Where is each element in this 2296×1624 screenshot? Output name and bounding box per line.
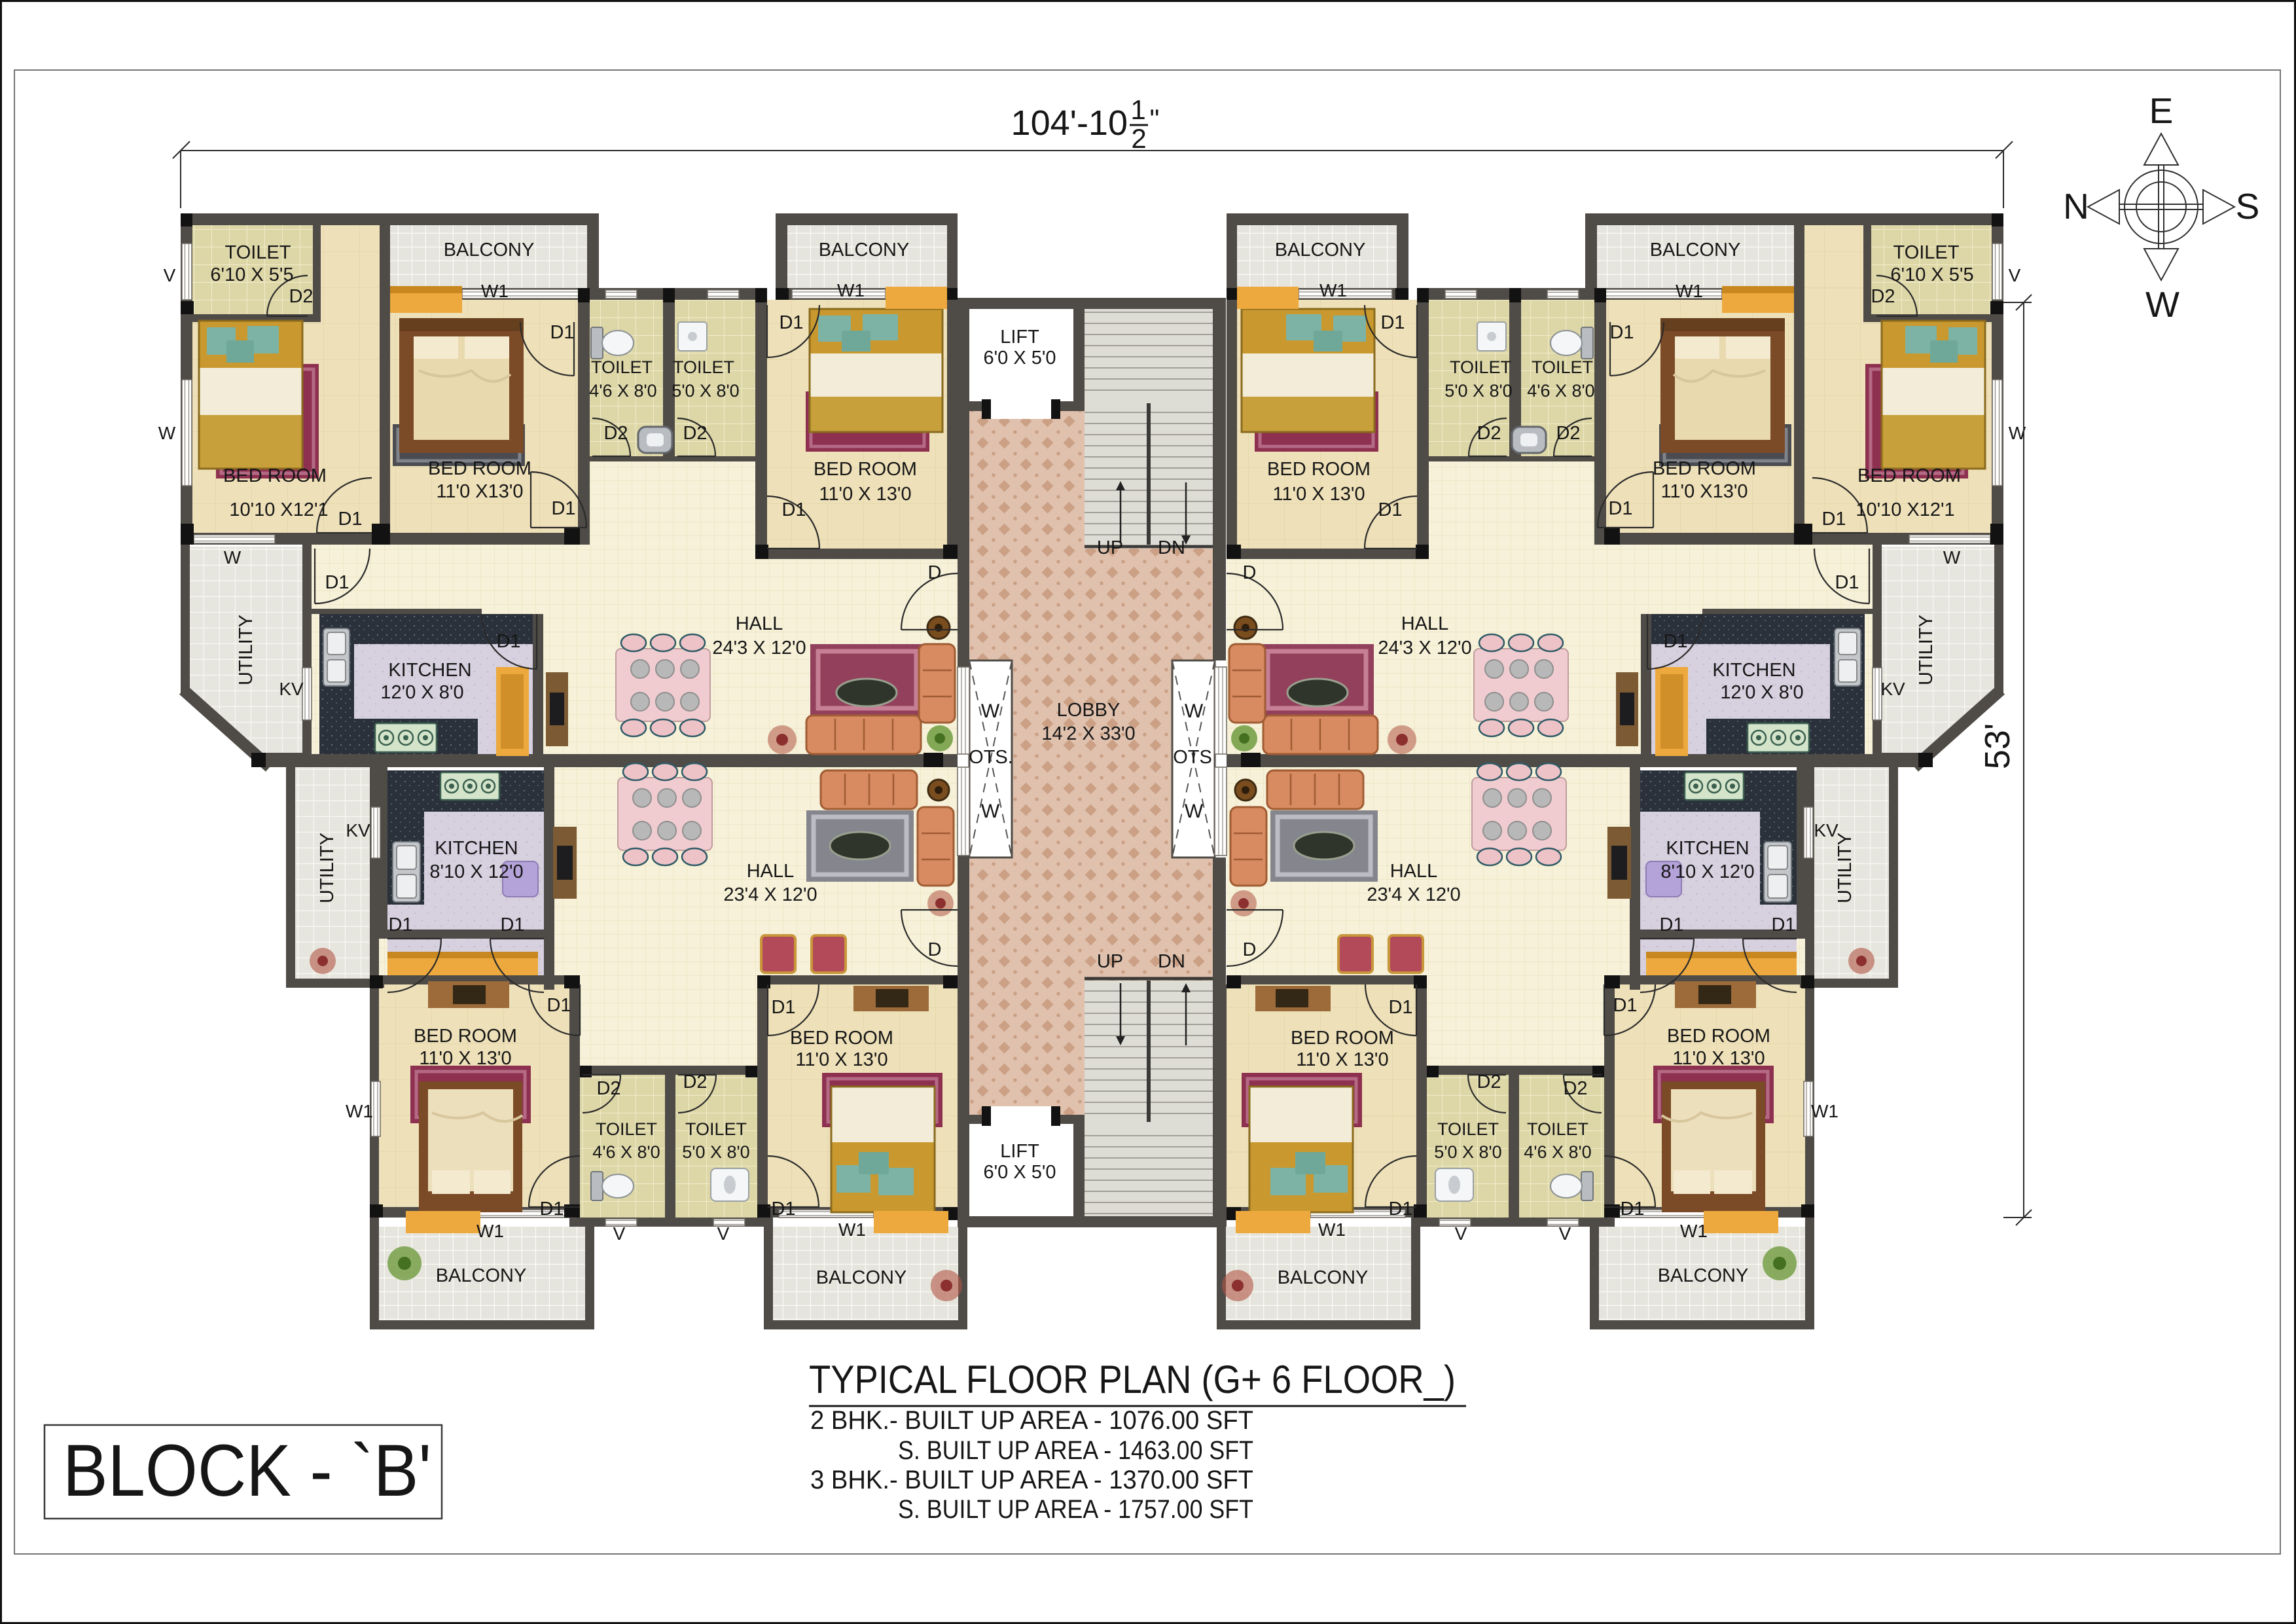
svg-text:11'0 X13'0: 11'0 X13'0 — [1660, 481, 1748, 502]
svg-text:TOILET: TOILET — [225, 242, 291, 263]
svg-text:HALL: HALL — [1390, 861, 1438, 882]
svg-text:24'3 X 12'0: 24'3 X 12'0 — [712, 638, 806, 659]
svg-text:W1: W1 — [1680, 1221, 1708, 1241]
svg-text:KV: KV — [1880, 679, 1905, 699]
svg-text:D2: D2 — [596, 1078, 620, 1099]
svg-text:D1: D1 — [771, 1199, 795, 1219]
svg-text:D1: D1 — [1663, 631, 1687, 652]
svg-text:D2: D2 — [683, 423, 707, 444]
svg-text:D1: D1 — [1380, 312, 1405, 333]
svg-text:W: W — [1185, 700, 1204, 722]
svg-text:W: W — [1185, 801, 1204, 822]
svg-text:HALL: HALL — [736, 613, 783, 634]
svg-text:6'0 X 5'0: 6'0 X 5'0 — [983, 1162, 1056, 1183]
svg-text:TOILET: TOILET — [685, 1119, 747, 1139]
svg-text:KV: KV — [279, 679, 304, 699]
svg-text:D1: D1 — [547, 995, 571, 1016]
svg-text:TOILET: TOILET — [1437, 1119, 1499, 1139]
svg-text:1: 1 — [1130, 94, 1145, 125]
svg-text:D1: D1 — [338, 509, 362, 530]
svg-text:10'10 X12'1: 10'10 X12'1 — [1856, 499, 1954, 520]
svg-text:W1: W1 — [837, 280, 865, 300]
svg-text:W1: W1 — [1318, 1219, 1346, 1240]
svg-text:W1: W1 — [838, 1219, 866, 1240]
svg-text:V: V — [717, 1223, 730, 1244]
svg-text:W: W — [1943, 547, 1961, 568]
svg-text:BALCONY: BALCONY — [444, 240, 535, 261]
svg-text:4'6 X 8'0: 4'6 X 8'0 — [592, 1142, 660, 1162]
svg-text:24'3 X 12'0: 24'3 X 12'0 — [1378, 638, 1471, 659]
svg-text:3 BHK.- BUILT UP AREA: 3 BHK.- BUILT UP AREA - 1370.00 SFT — [810, 1466, 1253, 1494]
svg-text:TOILET: TOILET — [1450, 357, 1511, 377]
svg-text:D2: D2 — [1477, 423, 1501, 444]
svg-text:23'4 X 12'0: 23'4 X 12'0 — [1367, 884, 1460, 905]
svg-text:W1: W1 — [1811, 1101, 1839, 1121]
svg-text:5'0 X 8'0: 5'0 X 8'0 — [672, 381, 739, 401]
svg-text:UP: UP — [1097, 951, 1123, 972]
svg-text:BED ROOM: BED ROOM — [414, 1026, 517, 1047]
svg-text:BED ROOM: BED ROOM — [1667, 1026, 1770, 1047]
svg-text:12'0 X 8'0: 12'0 X 8'0 — [380, 682, 463, 703]
svg-text:BED ROOM: BED ROOM — [1857, 465, 1961, 486]
svg-text:D1: D1 — [1388, 1199, 1412, 1219]
svg-text:D1: D1 — [781, 499, 806, 520]
svg-text:DN: DN — [1158, 537, 1185, 558]
svg-text:BED ROOM: BED ROOM — [1291, 1028, 1394, 1049]
svg-text:23'4 X 12'0: 23'4 X 12'0 — [723, 884, 817, 905]
svg-text:14'2 X 33'0: 14'2 X 33'0 — [1041, 723, 1135, 744]
svg-text:V: V — [2009, 265, 2021, 285]
svg-text:V: V — [613, 1223, 626, 1244]
svg-text:OTS: OTS — [1173, 747, 1212, 768]
svg-text:TOILET: TOILET — [1527, 1119, 1588, 1139]
svg-text:BALCONY: BALCONY — [1278, 1267, 1369, 1288]
svg-text:KITCHEN: KITCHEN — [1712, 660, 1795, 681]
svg-text:D: D — [928, 939, 942, 960]
svg-text:2 BHK.- BUILT UP AREA: 2 BHK.- BUILT UP AREA - 1076.00 SFT — [810, 1406, 1253, 1435]
svg-text:W1: W1 — [346, 1101, 373, 1121]
svg-text:BALCONY: BALCONY — [1650, 240, 1741, 261]
svg-text:BALCONY: BALCONY — [1275, 240, 1366, 261]
svg-text:UTILITY: UTILITY — [317, 833, 338, 903]
svg-text:KV: KV — [346, 820, 370, 840]
svg-text:W1: W1 — [1676, 281, 1703, 301]
svg-text:5'0 X 8'0: 5'0 X 8'0 — [682, 1142, 749, 1162]
svg-text:W: W — [224, 547, 242, 568]
svg-text:UTILITY: UTILITY — [236, 615, 257, 685]
svg-text:D: D — [928, 562, 942, 583]
svg-text:LIFT: LIFT — [1000, 1141, 1039, 1162]
svg-text:W: W — [158, 423, 176, 443]
svg-text:BALCONY: BALCONY — [816, 1267, 907, 1288]
svg-text:LOBBY: LOBBY — [1057, 700, 1121, 721]
svg-text:V: V — [1455, 1223, 1467, 1244]
svg-text:11'0 X 13'0: 11'0 X 13'0 — [1296, 1049, 1388, 1070]
svg-text:UTILITY: UTILITY — [1835, 833, 1856, 903]
svg-text:5'0 X 8'0: 5'0 X 8'0 — [1434, 1142, 1501, 1162]
svg-text:D: D — [1243, 939, 1257, 960]
svg-text:D1: D1 — [1378, 499, 1402, 520]
svg-text:D2: D2 — [289, 286, 313, 307]
svg-text:D1: D1 — [1609, 322, 1634, 343]
svg-text:12'0 X 8'0: 12'0 X 8'0 — [1720, 682, 1803, 703]
svg-text:D1: D1 — [325, 572, 349, 593]
svg-text:D1: D1 — [1835, 572, 1859, 593]
svg-text:D1: D1 — [1620, 1199, 1644, 1219]
svg-text:11'0 X 13'0: 11'0 X 13'0 — [419, 1048, 511, 1069]
svg-text:W1: W1 — [481, 281, 509, 301]
svg-text:BALCONY: BALCONY — [819, 240, 910, 261]
svg-text:11'0 X 13'0: 11'0 X 13'0 — [1272, 484, 1365, 505]
svg-text:BED ROOM: BED ROOM — [814, 459, 917, 480]
svg-text:D2: D2 — [683, 1072, 707, 1092]
svg-text:8'10 X 12'0: 8'10 X 12'0 — [1660, 861, 1754, 882]
svg-text:TYPICAL FLOOR PLAN (G+ 6 FLOO: TYPICAL FLOOR PLAN (G+ 6 FLOOR_) — [809, 1358, 1456, 1401]
svg-text:HALL: HALL — [747, 861, 795, 882]
svg-text:V: V — [164, 265, 176, 285]
svg-text:53': 53' — [1978, 723, 2017, 769]
svg-text:TOILET: TOILET — [673, 357, 734, 377]
svg-text:TOILET: TOILET — [1532, 357, 1593, 377]
svg-text:BALCONY: BALCONY — [1658, 1265, 1749, 1286]
svg-text:KITCHEN: KITCHEN — [1666, 838, 1749, 859]
svg-text:D2: D2 — [1871, 286, 1895, 307]
svg-text:D1: D1 — [771, 997, 795, 1018]
svg-text:W: W — [981, 700, 1000, 722]
svg-text:E: E — [2149, 90, 2174, 131]
svg-text:DN: DN — [1158, 951, 1185, 972]
svg-text:6'10 X 5'5: 6'10 X 5'5 — [210, 264, 293, 285]
svg-text:LIFT: LIFT — [1000, 327, 1039, 348]
svg-text:4'6 X 8'0: 4'6 X 8'0 — [589, 381, 656, 401]
svg-text:HALL: HALL — [1401, 613, 1449, 634]
svg-text:D1: D1 — [1613, 995, 1637, 1016]
svg-text:11'0 X 13'0: 11'0 X 13'0 — [795, 1049, 888, 1070]
svg-text:UP: UP — [1097, 537, 1123, 558]
svg-text:D1: D1 — [388, 914, 412, 935]
svg-text:D2: D2 — [1556, 423, 1580, 444]
svg-text:D2: D2 — [1563, 1078, 1587, 1099]
svg-text:OTS.: OTS. — [969, 747, 1013, 768]
svg-text:BED ROOM: BED ROOM — [1653, 458, 1756, 479]
svg-text:8'10 X 12'0: 8'10 X 12'0 — [429, 861, 523, 882]
svg-text:D1: D1 — [496, 631, 520, 652]
svg-text:D1: D1 — [500, 914, 524, 935]
svg-text:TOILET: TOILET — [1893, 242, 1960, 263]
svg-text:UTILITY: UTILITY — [1916, 615, 1937, 685]
svg-text:D1: D1 — [1771, 914, 1795, 935]
svg-text:N: N — [2063, 186, 2089, 226]
svg-text:D1: D1 — [551, 498, 575, 519]
svg-text:KITCHEN: KITCHEN — [388, 660, 471, 681]
svg-text:6'0 X 5'0: 6'0 X 5'0 — [983, 348, 1056, 369]
svg-text:BED ROOM: BED ROOM — [790, 1028, 893, 1049]
svg-text:5'0 X 8'0: 5'0 X 8'0 — [1444, 381, 1512, 401]
svg-text:6'10 X 5'5: 6'10 X 5'5 — [1890, 264, 1973, 285]
svg-text:BED ROOM: BED ROOM — [223, 465, 327, 486]
svg-text:V: V — [1559, 1223, 1571, 1244]
svg-text:D2: D2 — [1477, 1072, 1501, 1092]
svg-text:BED ROOM: BED ROOM — [1267, 459, 1371, 480]
svg-text:BED ROOM: BED ROOM — [428, 458, 531, 479]
svg-text:10'10 X12'1: 10'10 X12'1 — [229, 499, 328, 520]
svg-text:4'6 X 8'0: 4'6 X 8'0 — [1527, 381, 1594, 401]
svg-text:2: 2 — [1131, 123, 1146, 154]
svg-text:D1: D1 — [539, 1199, 564, 1219]
svg-text:W: W — [981, 801, 1000, 822]
svg-text:104'-10: 104'-10 — [1011, 103, 1128, 143]
svg-text:D1: D1 — [1659, 914, 1683, 935]
svg-text:W1: W1 — [476, 1221, 504, 1241]
svg-text:11'0 X 13'0: 11'0 X 13'0 — [819, 484, 911, 505]
svg-text:S. BUILT UP AREA - 1757.00 SFT: S. BUILT UP AREA - 1757.00 SFT — [898, 1495, 1253, 1524]
svg-text:TOILET: TOILET — [591, 357, 653, 377]
svg-text:TOILET: TOILET — [596, 1119, 657, 1139]
svg-text:D: D — [1243, 562, 1257, 583]
svg-text:D1: D1 — [779, 312, 803, 333]
svg-text:11'0 X13'0: 11'0 X13'0 — [436, 481, 523, 502]
svg-text:D1: D1 — [1388, 997, 1412, 1018]
svg-text:W1: W1 — [1319, 280, 1347, 300]
svg-text:D1: D1 — [550, 322, 574, 343]
svg-text:KITCHEN: KITCHEN — [435, 838, 518, 859]
svg-text:S. BUILT UP AREA - 1463.00 SFT: S. BUILT UP AREA - 1463.00 SFT — [898, 1436, 1253, 1465]
svg-text:": " — [1150, 103, 1160, 134]
svg-text:D1: D1 — [1608, 498, 1632, 519]
svg-text:BALCONY: BALCONY — [436, 1265, 527, 1286]
svg-text:D1: D1 — [1821, 509, 1846, 530]
svg-text:BLOCK - `B': BLOCK - `B' — [63, 1430, 431, 1511]
svg-text:D2: D2 — [603, 423, 628, 444]
svg-text:4'6 X 8'0: 4'6 X 8'0 — [1524, 1142, 1591, 1162]
svg-text:11'0 X 13'0: 11'0 X 13'0 — [1672, 1048, 1765, 1069]
svg-text:W: W — [2145, 284, 2179, 325]
svg-text:S: S — [2236, 186, 2260, 226]
